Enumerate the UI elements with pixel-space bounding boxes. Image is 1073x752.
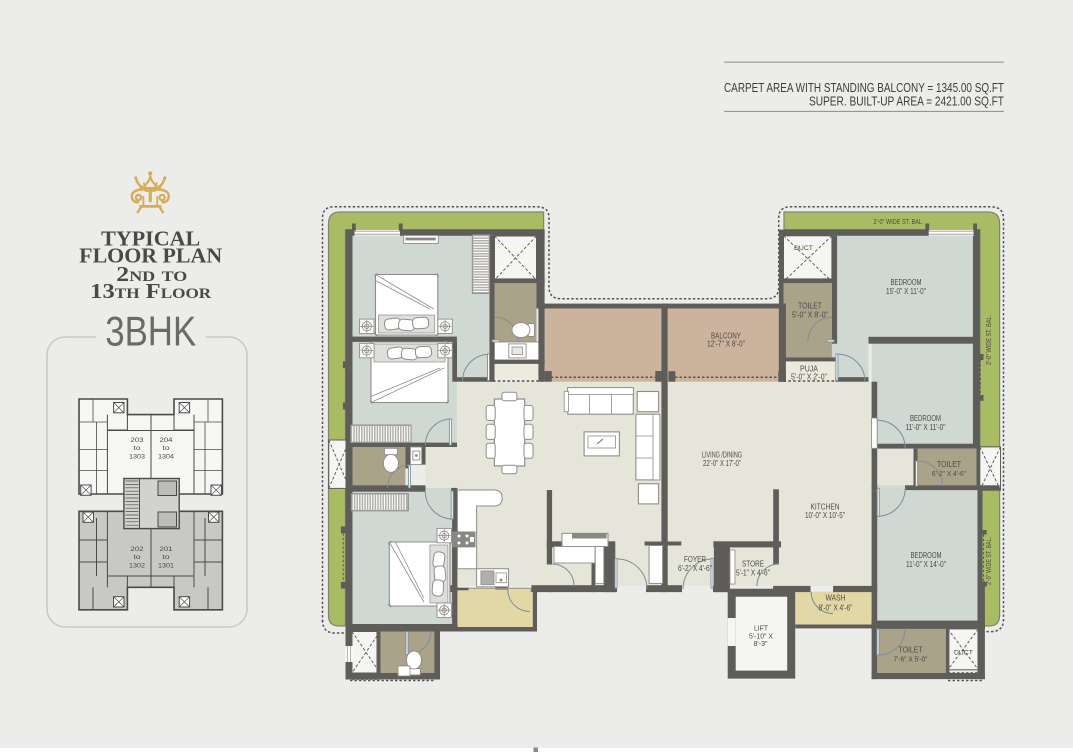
svg-text:2'-0" WIDE ST. BAL.: 2'-0" WIDE ST. BAL. (874, 219, 924, 226)
svg-text:11'-0" X 11'-0": 11'-0" X 11'-0" (906, 423, 946, 432)
svg-text:5'-1" X 4'-6": 5'-1" X 4'-6" (736, 569, 770, 578)
svg-text:TOILET: TOILET (899, 646, 923, 655)
svg-text:WASH: WASH (826, 594, 846, 603)
svg-text:5'-10" X: 5'-10" X (749, 634, 773, 641)
svg-text:3BHK: 3BHK (105, 308, 196, 355)
svg-text:1301: 1301 (158, 563, 174, 570)
svg-text:12'-7" X 8'-0": 12'-7" X 8'-0" (707, 340, 745, 349)
svg-text:202: 202 (131, 546, 144, 553)
svg-text:DUCT: DUCT (954, 650, 973, 657)
svg-text:11'-0" X 14'-0": 11'-0" X 14'-0" (906, 560, 946, 569)
svg-text:BEDROOM: BEDROOM (891, 278, 922, 287)
svg-text:5'-0" X 8'-0": 5'-0" X 8'-0" (792, 311, 828, 320)
svg-text:8'-3": 8'-3" (754, 641, 769, 648)
svg-text:TOILET: TOILET (937, 460, 961, 469)
svg-text:to: to (134, 445, 142, 452)
svg-text:LIFT: LIFT (754, 626, 769, 633)
svg-text:6'-2" X 4'-6": 6'-2" X 4'-6" (678, 564, 712, 573)
svg-text:DUCT: DUCT (794, 245, 813, 252)
svg-text:201: 201 (160, 546, 173, 553)
svg-text:15'-0" X 11'-0": 15'-0" X 11'-0" (886, 287, 926, 296)
svg-text:TOILET: TOILET (798, 302, 822, 311)
svg-text:8'-0" X 4'-6": 8'-0" X 4'-6" (819, 604, 853, 613)
svg-text:2'-0" WIDE ST. BAL.: 2'-0" WIDE ST. BAL. (986, 537, 993, 585)
svg-text:204: 204 (160, 437, 173, 444)
svg-text:203: 203 (131, 437, 144, 444)
svg-text:10'-0" X 10'-5": 10'-0" X 10'-5" (805, 511, 845, 520)
svg-text:7'-6" X 5'-0": 7'-6" X 5'-0" (894, 655, 928, 664)
svg-text:BEDROOM: BEDROOM (911, 551, 942, 560)
svg-text:to: to (134, 554, 142, 561)
svg-text:CARPET AREA WITH STANDING BALC: CARPET AREA WITH STANDING BALCONY = 1345… (724, 81, 1004, 95)
svg-text:to: to (163, 445, 171, 452)
svg-text:1304: 1304 (158, 454, 174, 461)
svg-text:BEDROOM: BEDROOM (910, 414, 941, 423)
svg-text:to: to (163, 554, 171, 561)
svg-text:6'-2" X 4'-6": 6'-2" X 4'-6" (932, 469, 966, 478)
svg-text:1303: 1303 (129, 454, 145, 461)
svg-text:1302: 1302 (129, 563, 145, 570)
svg-text:FOYER: FOYER (684, 555, 706, 564)
svg-text:5'-0" X 2'-0": 5'-0" X 2'-0" (791, 373, 827, 382)
svg-text:22'-0" X 17'-0": 22'-0" X 17'-0" (703, 459, 741, 468)
svg-text:STORE: STORE (742, 560, 764, 569)
svg-text:13th Floor: 13th Floor (90, 279, 211, 303)
svg-text:SUPER. BUILT-UP AREA = 2421.00: SUPER. BUILT-UP AREA = 2421.00 SQ.FT (809, 95, 1004, 109)
svg-text:2'-0" WIDE ST. BAL.: 2'-0" WIDE ST. BAL. (986, 315, 993, 365)
